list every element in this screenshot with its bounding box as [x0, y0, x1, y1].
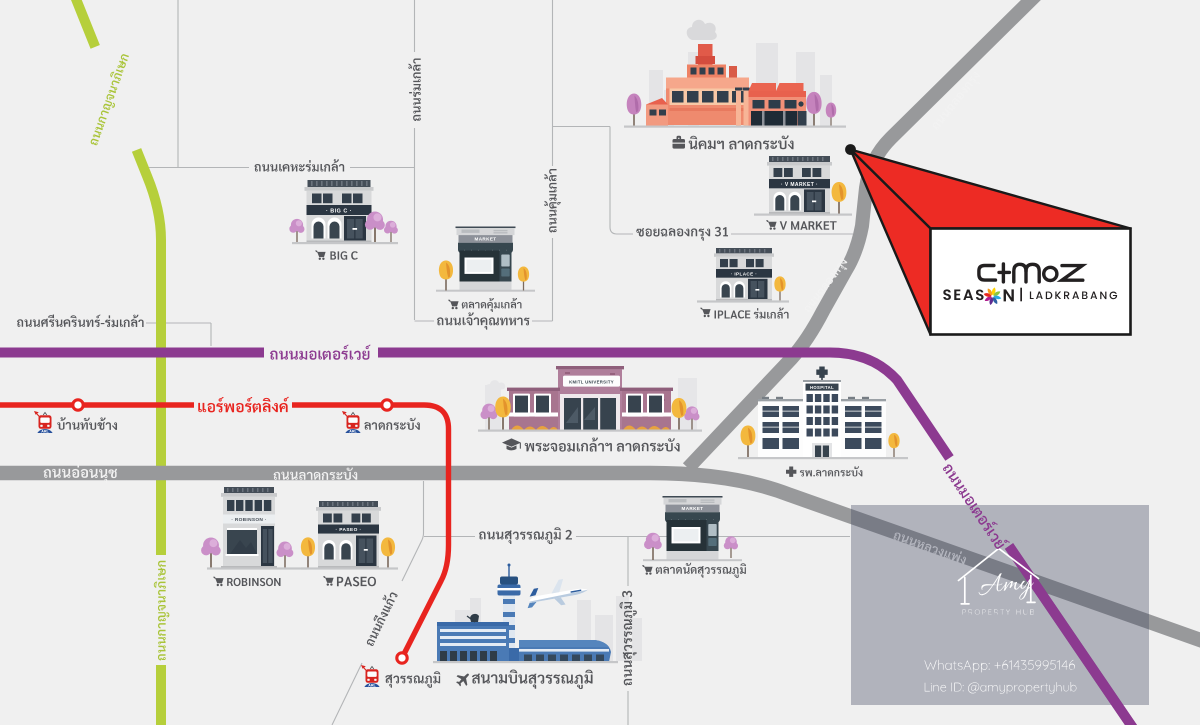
svg-text:· PASEO ·: · PASEO ·: [336, 527, 362, 533]
svg-text:MARKET: MARKET: [474, 237, 496, 242]
svg-text:· BIG C ·: · BIG C ·: [326, 208, 352, 214]
svg-text:KMITL UNIVERSITY: KMITL UNIVERSITY: [569, 379, 614, 384]
svg-text:· ROBINSON ·: · ROBINSON ·: [231, 517, 266, 523]
svg-text:· V MARKET ·: · V MARKET ·: [781, 182, 818, 188]
svg-text:HOSPITAL: HOSPITAL: [810, 385, 834, 390]
svg-text:MARKET: MARKET: [681, 506, 703, 511]
svg-text:· IPLACE ·: · IPLACE ·: [731, 271, 757, 276]
